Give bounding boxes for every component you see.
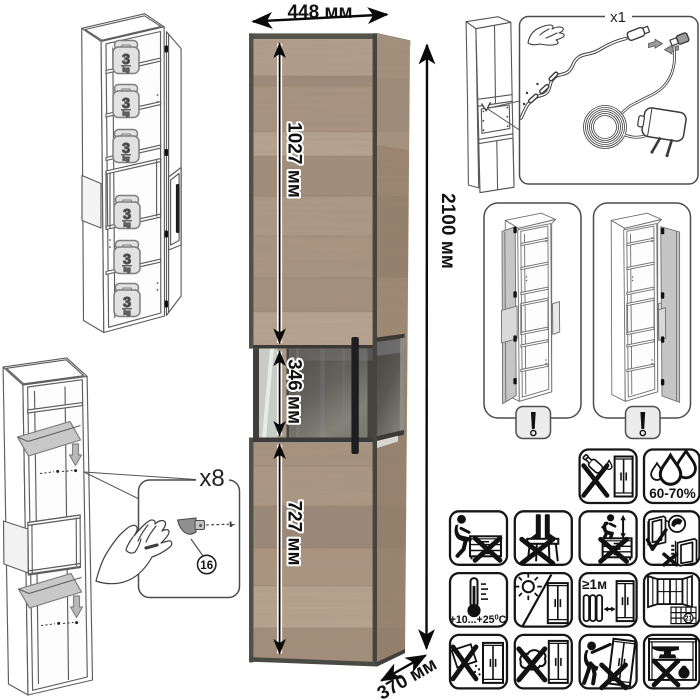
svg-text:≥1м: ≥1м: [582, 577, 607, 592]
svg-text:x8: x8: [199, 465, 224, 492]
svg-text:727 мм: 727 мм: [284, 500, 305, 565]
svg-text:60-70%: 60-70%: [649, 486, 696, 501]
svg-text:+10...+250C: +10...+250C: [450, 613, 507, 627]
svg-text:x1: x1: [610, 9, 626, 26]
svg-text:21: 21: [685, 616, 693, 623]
svg-text:1027 мм: 1027 мм: [284, 122, 305, 198]
svg-text:346 мм: 346 мм: [284, 359, 305, 424]
svg-text:2100 мм: 2100 мм: [437, 193, 458, 269]
svg-text:16: 16: [200, 560, 213, 572]
